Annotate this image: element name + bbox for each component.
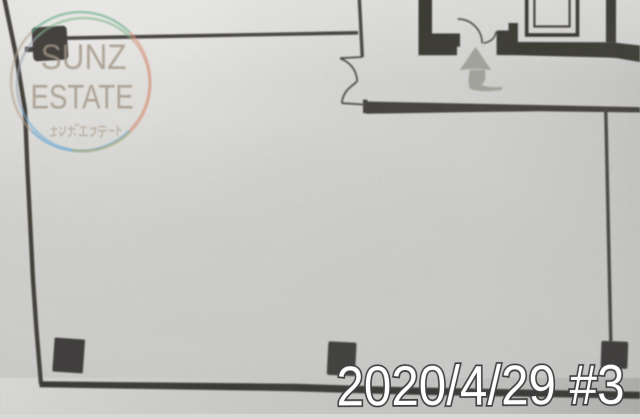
svg-text:2020/4/29 #3: 2020/4/29 #3 <box>336 353 624 414</box>
